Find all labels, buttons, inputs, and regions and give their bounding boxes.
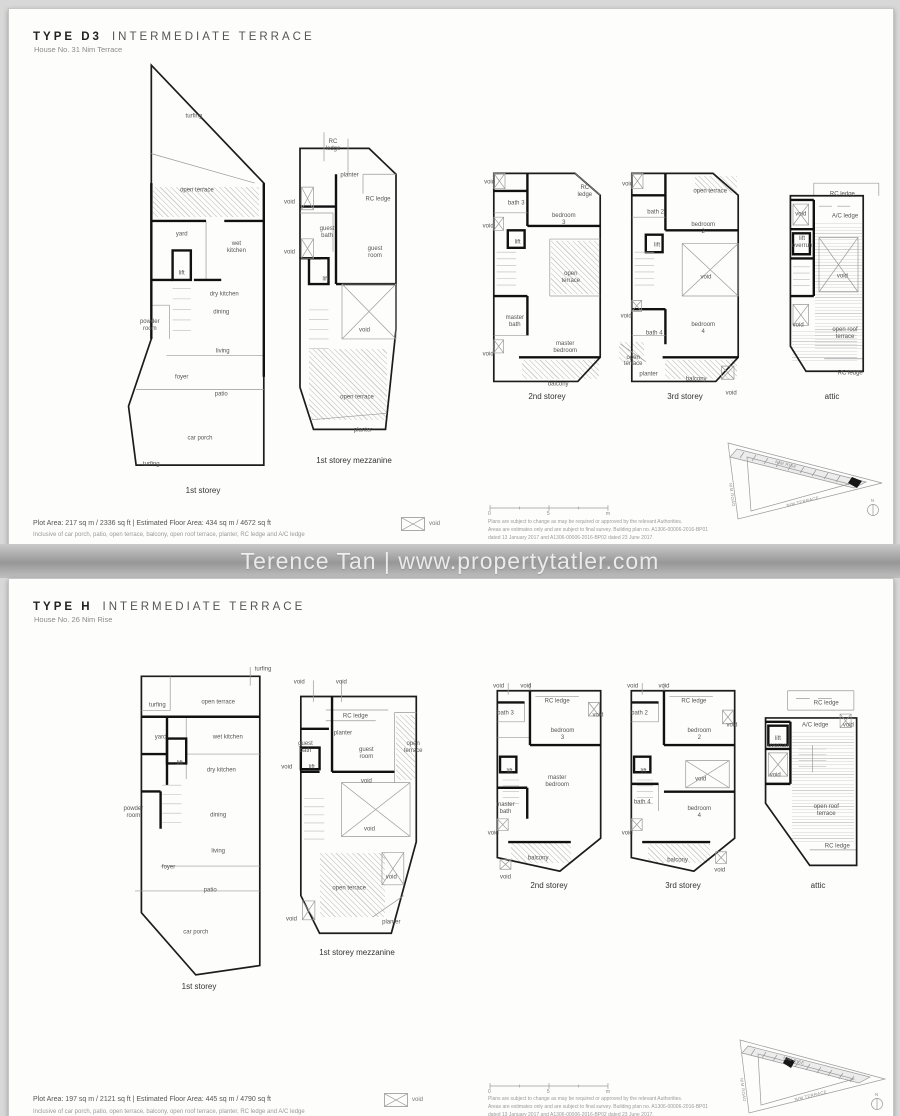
disclaimer-text: Plans are subject to change as may be re… xyxy=(488,1095,768,1116)
room-label: void xyxy=(726,391,737,398)
room-label: void xyxy=(286,917,297,924)
room-label: bedroom 3 xyxy=(549,728,577,742)
room-label: void xyxy=(284,250,295,257)
room-label: bath 2 xyxy=(646,210,666,217)
plan-drawing xyxy=(477,169,617,388)
room-label: void xyxy=(714,868,725,875)
disclaimer-line: Areas are estimates only and are subject… xyxy=(488,1103,768,1111)
room-label: void xyxy=(500,874,511,881)
room-label: void xyxy=(336,680,347,687)
plan-caption: attic xyxy=(767,392,897,401)
room-label: lift xyxy=(309,765,315,772)
room-label: car porch xyxy=(183,435,217,442)
watermark-text: Terence Tan | www.propertytatler.com xyxy=(241,548,660,575)
room-label: lift xyxy=(515,240,521,247)
room-label: open terrace xyxy=(195,699,241,706)
room-label: RC ledge xyxy=(811,700,841,707)
room-label: void xyxy=(484,179,495,186)
plan-caption: 1st storey xyxy=(127,486,279,495)
room-label: open terrace xyxy=(174,188,220,195)
room-label: RC ledge xyxy=(573,185,597,199)
room-label: void xyxy=(488,831,499,838)
room-label: master bedroom xyxy=(541,775,573,789)
room-label: dining xyxy=(213,309,229,316)
room-label: RC ledge xyxy=(363,196,393,203)
room-label: powder room xyxy=(120,806,146,820)
house-number: House No. 31 Nim Terrace xyxy=(34,45,122,54)
room-label: foyer xyxy=(175,374,188,381)
disclaimer-text: Plans are subject to change as may be re… xyxy=(488,518,768,542)
plan-drawing xyxy=(767,179,897,388)
room-label: turfing xyxy=(143,461,160,468)
floorplan-h-2nd-storey: 2nd storey voidvoidbath 3RC ledgebedroom… xyxy=(481,683,617,890)
room-label: open terrace xyxy=(327,886,371,893)
plan-caption: attic xyxy=(749,881,887,890)
floorplan-d3-2nd-storey: 2nd storey voidbath 3RC ledgebedroom 3vo… xyxy=(477,169,617,401)
plan-caption: 1st storey mezzanine xyxy=(279,948,435,957)
void-legend-label: void xyxy=(429,521,440,527)
scale-bar: 0 5 m xyxy=(488,503,610,519)
room-label: bedroom 2 xyxy=(685,728,713,742)
room-label: A/C ledge xyxy=(795,723,835,730)
scale-tick: 0 xyxy=(488,511,491,517)
room-label: void xyxy=(294,680,305,687)
room-label: car porch xyxy=(179,929,213,936)
room-label: void xyxy=(284,199,295,206)
room-label: lift xyxy=(323,277,329,284)
site-key-plan: NIM RISE NIM ROAD NIM TERRACE N xyxy=(719,423,894,523)
room-label: bedroom 4 xyxy=(685,807,713,821)
room-label: RC ledge xyxy=(822,843,852,850)
room-label: void xyxy=(658,684,669,691)
room-label: guest room xyxy=(353,747,379,761)
room-label: dry kitchen xyxy=(202,292,246,299)
room-label: void xyxy=(837,273,848,280)
room-label: powder room xyxy=(136,319,164,333)
void-legend-box xyxy=(401,517,425,531)
room-label: yard xyxy=(176,231,188,238)
room-label: void xyxy=(770,773,781,780)
void-legend: void xyxy=(401,517,440,531)
room-label: void xyxy=(795,211,806,218)
room-label: open terrace xyxy=(335,394,379,401)
floorplan-d3-1st-storey: 1st storey turfingopen terraceyardwet ki… xyxy=(127,61,279,495)
room-label: lift xyxy=(641,769,647,776)
room-label: open terrace xyxy=(691,189,729,196)
room-label: planter xyxy=(334,731,352,738)
room-label: turfing xyxy=(186,114,203,121)
room-label: void xyxy=(793,322,804,329)
scale-tick: 5 xyxy=(547,511,550,517)
room-label: dry kitchen xyxy=(199,767,243,774)
floorplan-h-attic: attic RC ledgeA/C ledgevoidlift overrunv… xyxy=(749,683,887,890)
room-label: bath 3 xyxy=(495,711,515,718)
room-label: RC ledge xyxy=(681,698,707,705)
room-label: void xyxy=(493,684,504,691)
room-label: wet kitchen xyxy=(206,735,250,742)
room-label: open roof terrace xyxy=(806,804,846,818)
room-label: living xyxy=(211,848,225,855)
room-label: balcony xyxy=(686,377,707,384)
room-label: void xyxy=(700,275,711,282)
svg-text:N: N xyxy=(875,1092,878,1097)
room-label: void xyxy=(592,713,603,720)
house-number: House No. 26 Nim Rise xyxy=(34,615,112,624)
north-arrow-icon: N xyxy=(868,498,879,516)
brochure-scan: TYPE D3INTERMEDIATE TERRACE House No. 31… xyxy=(0,0,900,1116)
room-label: open terrace xyxy=(557,271,585,285)
plan-caption: 2nd storey xyxy=(477,392,617,401)
svg-text:N: N xyxy=(871,498,874,503)
north-arrow-icon: N xyxy=(872,1092,883,1110)
room-label: master bath xyxy=(492,802,518,816)
disclaimer-line: Areas are estimates only and are subject… xyxy=(488,526,768,534)
room-label: void xyxy=(695,777,706,784)
plot-area-text: Plot Area: 217 sq m / 2336 sq ft | Estim… xyxy=(33,520,271,527)
room-label: lift xyxy=(177,761,183,768)
room-label: RC ledge xyxy=(835,371,865,378)
room-label: planter xyxy=(382,920,400,927)
type-label: TYPE D3 xyxy=(33,31,102,43)
page-type-d3: TYPE D3INTERMEDIATE TERRACE House No. 31… xyxy=(8,8,894,550)
plan-outline xyxy=(127,61,279,482)
floorplan-h-1st-storey: 1st storey turfingturfingopen terraceyar… xyxy=(119,667,279,991)
type-desc: INTERMEDIATE TERRACE xyxy=(112,31,315,43)
void-legend-box xyxy=(384,1093,408,1107)
room-label: foyer xyxy=(162,864,175,871)
plan-drawing xyxy=(127,61,279,482)
type-label: TYPE H xyxy=(33,601,93,613)
room-label: patio xyxy=(204,887,217,894)
room-label: master bedroom xyxy=(549,341,581,355)
room-label: balcony xyxy=(528,855,549,862)
room-label: void xyxy=(386,875,397,882)
void-legend-label: void xyxy=(412,1097,423,1103)
plan-caption: 2nd storey xyxy=(481,881,617,890)
room-label: guest bath xyxy=(294,741,318,755)
plan-drawing xyxy=(749,683,887,877)
plan-caption: 1st storey mezzanine xyxy=(279,456,429,465)
disclaimer-line: dated 13 January 2017 and A1306-00006-20… xyxy=(488,534,768,542)
room-label: open terrace xyxy=(402,741,424,755)
scale-tick: m xyxy=(606,511,610,517)
room-label: turfing xyxy=(255,667,272,674)
room-label: patio xyxy=(215,392,228,399)
area-note-text: Inclusive of car porch, patio, open terr… xyxy=(33,532,305,538)
watermark-band: Terence Tan | www.propertytatler.com xyxy=(0,544,900,578)
room-label: open roof terrace xyxy=(828,328,862,342)
floorplan-d3-3rd-storey: 3rd storey voidopen terracebath 2bedroom… xyxy=(615,169,755,401)
plan-outline xyxy=(477,169,617,388)
room-label: planter xyxy=(354,428,372,435)
room-label: lift overrun xyxy=(766,736,790,750)
room-label: dining xyxy=(210,813,226,820)
room-label: void xyxy=(726,723,737,730)
room-label: void xyxy=(359,327,370,334)
room-label: balcony xyxy=(548,381,569,388)
room-label: turfing xyxy=(149,702,166,709)
room-label: wet kitchen xyxy=(223,241,249,255)
room-label: bedroom 2 xyxy=(689,222,717,236)
plan-caption: 1st storey xyxy=(119,982,279,991)
disclaimer-line: Plans are subject to change as may be re… xyxy=(488,1095,768,1103)
room-label: A/C ledge xyxy=(825,213,865,220)
plot-area-text: Plot Area: 197 sq m / 2121 sq ft | Estim… xyxy=(33,1096,271,1103)
room-label: void xyxy=(483,351,494,358)
room-label: void xyxy=(622,831,633,838)
room-label: yard xyxy=(155,735,167,742)
room-label: RC ledge xyxy=(827,191,857,198)
room-label: balcony xyxy=(667,858,688,865)
room-label: bath 4 xyxy=(644,330,664,337)
room-label: RC ledge xyxy=(321,139,345,153)
room-label: lift overrun xyxy=(791,236,813,250)
room-label: lift xyxy=(654,242,660,249)
room-label: RC ledge xyxy=(544,698,570,705)
road-label: NIM ROAD xyxy=(728,482,736,507)
scale-bar-ticks: 0 5 m xyxy=(488,511,610,517)
room-label: bath 4 xyxy=(632,800,652,807)
room-label: planter xyxy=(639,372,657,379)
room-label: void xyxy=(483,224,494,231)
site-key-map: NIM RISE NIM ROAD NIM TERRACE N xyxy=(719,423,894,523)
disclaimer-line: Plans are subject to change as may be re… xyxy=(488,518,768,526)
room-label: void xyxy=(843,723,854,730)
floorplan-d3-attic: attic RC ledgevoidA/C ledgelift overrunv… xyxy=(767,179,897,401)
void-legend: void xyxy=(384,1093,423,1107)
room-label: lift xyxy=(507,769,513,776)
type-desc: INTERMEDIATE TERRACE xyxy=(103,601,306,613)
room-label: void xyxy=(361,779,372,786)
room-label: bath 2 xyxy=(629,711,649,718)
room-label: living xyxy=(216,348,230,355)
area-note-text: Inclusive of car porch, patio, open terr… xyxy=(33,1109,305,1115)
room-label: void xyxy=(520,684,531,691)
room-label: void xyxy=(281,765,292,772)
room-label: void xyxy=(627,684,638,691)
room-label: bath 3 xyxy=(506,200,526,207)
room-label: guest room xyxy=(362,246,388,260)
floorplan-h-mezzanine: 1st storey mezzanine voidvoidRC ledgepla… xyxy=(279,675,435,957)
disclaimer-line: dated 13 January 2017 and A1306-00006-20… xyxy=(488,1111,768,1116)
plan-outline xyxy=(749,683,887,877)
floorplan-d3-mezzanine: 1st storey mezzanine RC ledgeplantervoid… xyxy=(279,129,429,465)
room-label: void xyxy=(622,182,633,189)
room-label: planter xyxy=(340,173,358,180)
room-label: guest bath xyxy=(315,226,339,240)
room-label: bedroom 4 xyxy=(689,322,717,336)
floorplan-h-3rd-storey: 3rd storey voidvoidbath 2RC ledgebedroom… xyxy=(615,683,751,890)
room-label: master bath xyxy=(502,315,528,329)
page-title: TYPE D3INTERMEDIATE TERRACE xyxy=(33,27,315,45)
plan-outline xyxy=(767,179,897,388)
room-label: open terrace xyxy=(622,355,644,369)
plan-caption: 3rd storey xyxy=(615,881,751,890)
room-label: lift xyxy=(179,270,185,277)
page-type-h: TYPE HINTERMEDIATE TERRACE House No. 26 … xyxy=(8,578,894,1116)
room-label: void xyxy=(621,314,632,321)
page-title: TYPE HINTERMEDIATE TERRACE xyxy=(33,597,305,615)
room-label: RC ledge xyxy=(340,714,370,721)
room-label: bedroom 3 xyxy=(550,213,578,227)
room-label: void xyxy=(364,827,375,834)
